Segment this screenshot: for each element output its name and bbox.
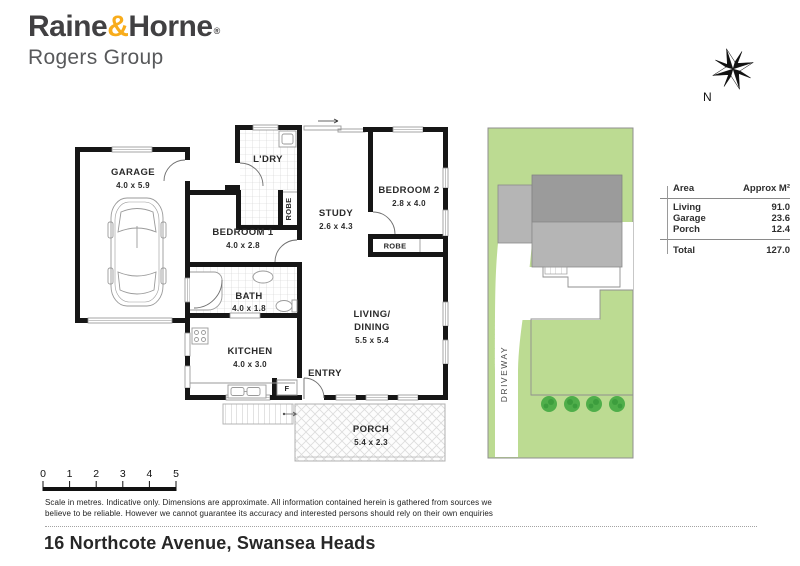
kitchen-dims: 4.0 x 3.0 xyxy=(233,360,267,369)
property-address: 16 Northcote Avenue, Swansea Heads xyxy=(44,533,376,554)
porch-dims: 5.4 x 2.3 xyxy=(354,438,388,447)
bedroom2-door-arc xyxy=(373,212,395,234)
site-plan: DRIVEWAY xyxy=(488,128,633,458)
driveway-label: DRIVEWAY xyxy=(499,346,509,402)
plan-drawing: N xyxy=(0,0,800,566)
disclaimer-line2: believe to be reliable. However we canno… xyxy=(45,509,685,520)
area-row-value: 91.0 xyxy=(772,202,791,213)
porch-label: PORCH xyxy=(353,424,389,435)
steps xyxy=(223,404,293,424)
entry-label: ENTRY xyxy=(308,368,342,379)
shower xyxy=(190,272,222,310)
garage-label: GARAGE xyxy=(111,167,155,178)
house-roof-upper xyxy=(532,175,622,222)
robe1-label: ROBE xyxy=(284,198,293,221)
scale-tick-4: 4 xyxy=(146,468,152,480)
area-table-header-approx: Approx M² xyxy=(743,183,790,194)
study-dims: 2.6 x 4.3 xyxy=(319,222,353,231)
floor-plan: GARAGE 4.0 x 5.9 L'DRY BEDROOM 1 4.0 x 2… xyxy=(75,119,448,461)
stove xyxy=(192,328,208,344)
area-table-border xyxy=(667,186,668,254)
study-label: STUDY xyxy=(319,208,353,219)
bath-dims: 4.0 x 1.8 xyxy=(232,304,266,313)
bedroom2-dims: 2.8 x 4.0 xyxy=(392,199,426,208)
area-table-header: Area Approx M² xyxy=(660,183,790,199)
toilet xyxy=(276,301,292,312)
car xyxy=(108,198,166,306)
house-roof-lower xyxy=(532,222,622,267)
garage-door-arc xyxy=(164,160,185,181)
scale-tick-5: 5 xyxy=(173,468,179,480)
bath-label: BATH xyxy=(235,291,262,302)
kitchen-label: KITCHEN xyxy=(227,346,272,357)
divider-line xyxy=(45,526,757,527)
table-row: Porch 12.4 xyxy=(660,224,790,235)
laundry-label: L'DRY xyxy=(253,154,283,165)
entry-door-arc xyxy=(304,378,324,399)
compass-north-label: N xyxy=(703,90,712,104)
area-row-label: Living xyxy=(673,202,701,213)
scale-tick-2: 2 xyxy=(93,468,99,480)
living-label-line2: DINING xyxy=(354,322,390,333)
area-table-total: Total 127.0 xyxy=(660,240,790,256)
scale-tick-0: 0 xyxy=(40,468,46,480)
living-label-line1: LIVING/ xyxy=(353,309,390,320)
robe2-label: ROBE xyxy=(384,242,407,251)
area-row-value: 12.4 xyxy=(772,224,791,235)
disclaimer: Scale in metres. Indicative only. Dimens… xyxy=(45,498,685,519)
disclaimer-line1: Scale in metres. Indicative only. Dimens… xyxy=(45,498,685,509)
table-row: Living 91.0 xyxy=(660,202,790,213)
scale-tick-1: 1 xyxy=(67,468,73,480)
side-path xyxy=(622,222,633,267)
bedroom1-label: BEDROOM 1 xyxy=(212,227,273,238)
scale-tick-3: 3 xyxy=(120,468,126,480)
area-row-label: Garage xyxy=(673,213,706,224)
hall-floor xyxy=(241,190,278,225)
site-steps xyxy=(545,267,567,274)
fridge-label: F xyxy=(285,384,290,393)
bedroom1-door-arc xyxy=(275,240,297,262)
area-row-label: Porch xyxy=(673,224,700,235)
living-dims: 5.5 x 5.4 xyxy=(355,336,389,345)
table-row: Garage 23.6 xyxy=(660,213,790,224)
total-label: Total xyxy=(673,245,695,256)
roofline-arrow xyxy=(318,119,338,123)
compass-rose-icon: N xyxy=(703,43,759,104)
area-table: Area Approx M² Living 91.0 Garage 23.6 P… xyxy=(660,183,790,256)
area-table-header-area: Area xyxy=(673,183,694,194)
bedroom2-label: BEDROOM 2 xyxy=(378,185,439,196)
total-value: 127.0 xyxy=(766,245,790,256)
bath-sink xyxy=(253,271,273,283)
bedroom1-dims: 4.0 x 2.8 xyxy=(226,241,260,250)
scale-bar: 0 1 2 3 4 5 xyxy=(40,468,179,491)
area-row-value: 23.6 xyxy=(772,213,791,224)
garage-footprint xyxy=(498,185,532,243)
garage-dims: 4.0 x 5.9 xyxy=(116,181,150,190)
area-table-body: Living 91.0 Garage 23.6 Porch 12.4 xyxy=(660,199,790,240)
scale-bar-rule xyxy=(43,487,177,491)
